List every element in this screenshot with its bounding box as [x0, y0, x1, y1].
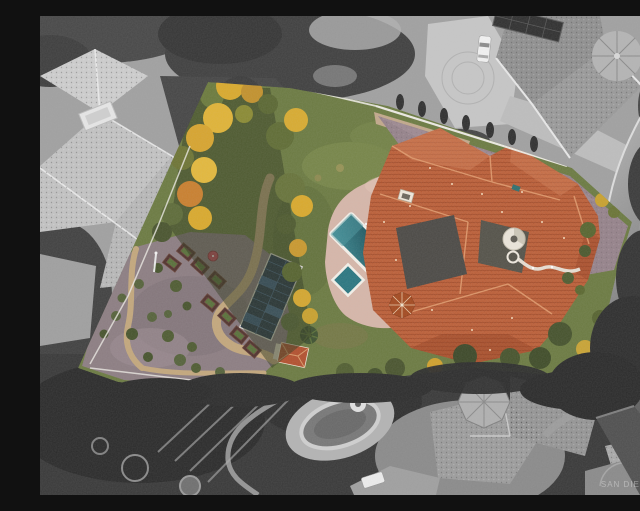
- watermark: SAN DIEGO MLS: [601, 480, 640, 489]
- aerial-photo: SAN DIEGO MLS: [40, 16, 640, 495]
- photo-grain-overlay: [40, 16, 640, 495]
- aerial-photo-canvas: SAN DIEGO MLS: [40, 16, 640, 495]
